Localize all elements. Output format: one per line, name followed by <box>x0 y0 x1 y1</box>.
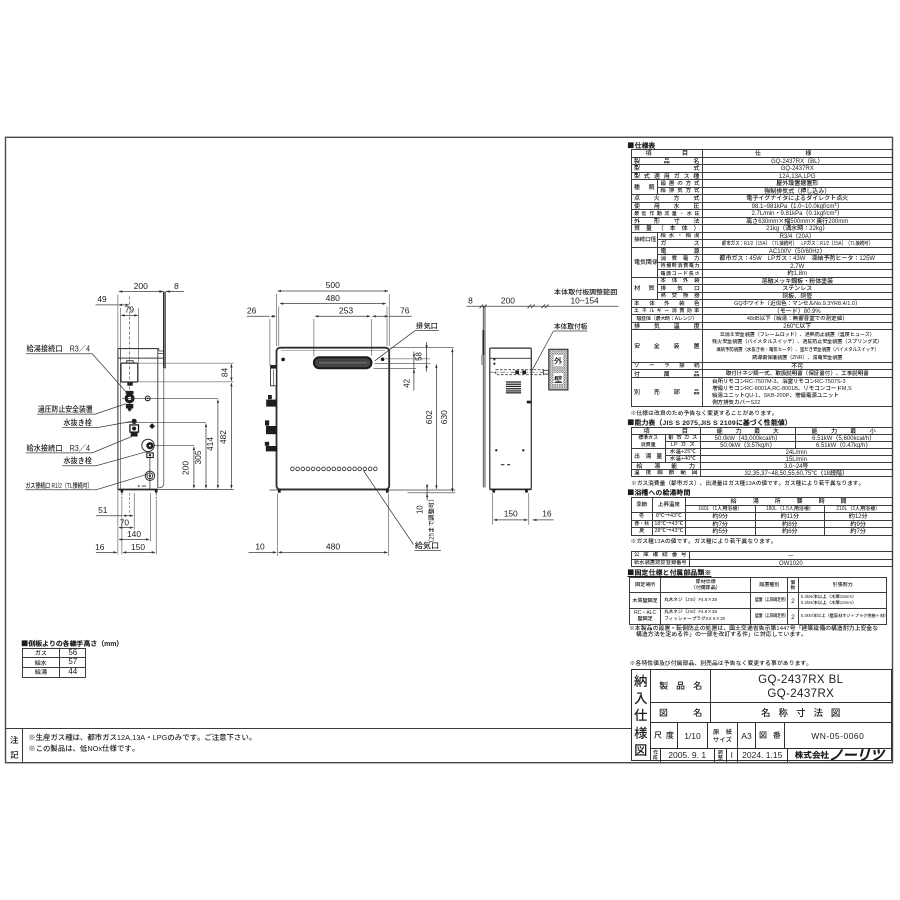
svg-text:本体取付板: 本体取付板 <box>554 322 588 332</box>
svg-text:200: 200 <box>134 280 149 292</box>
svg-text:482: 482 <box>217 430 229 444</box>
svg-text:602: 602 <box>423 410 435 424</box>
svg-text:84: 84 <box>219 368 231 378</box>
svg-text:253: 253 <box>339 305 354 317</box>
svg-text:ガス接続口 R1/2（TL接続可）: ガス接続口 R1/2（TL接続可） <box>25 481 92 491</box>
svg-text:200: 200 <box>179 461 191 475</box>
svg-text:過圧防止安全装置: 過圧防止安全装置 <box>38 404 93 415</box>
svg-text:42: 42 <box>401 379 412 388</box>
svg-text:58: 58 <box>414 352 425 361</box>
svg-text:79: 79 <box>125 304 135 316</box>
svg-text:70: 70 <box>120 516 130 528</box>
svg-text:16: 16 <box>542 508 552 520</box>
svg-text:49: 49 <box>97 293 107 305</box>
svg-text:排気口: 排気口 <box>416 321 438 332</box>
svg-text:150: 150 <box>131 541 145 553</box>
svg-text:51: 51 <box>98 504 108 516</box>
svg-text:76: 76 <box>400 305 410 317</box>
svg-text:16: 16 <box>95 541 105 553</box>
svg-text:10: 10 <box>255 540 265 552</box>
svg-text:305: 305 <box>192 450 204 464</box>
svg-text:外: 外 <box>553 355 562 367</box>
svg-text:8: 8 <box>468 294 473 306</box>
svg-text:10: 10 <box>414 505 425 514</box>
svg-text:200: 200 <box>501 294 515 306</box>
svg-text:26: 26 <box>247 305 257 317</box>
svg-text:630: 630 <box>438 410 450 424</box>
svg-text:給湯接続口 R3／4: 給湯接続口 R3／4 <box>26 344 91 355</box>
svg-text:150: 150 <box>504 508 518 520</box>
svg-text:壁: 壁 <box>554 373 562 385</box>
svg-text:（25まで調整可）: （25まで調整可） <box>426 496 435 546</box>
svg-text:給水接続口 R3／4: 給水接続口 R3／4 <box>26 443 91 454</box>
svg-text:8: 8 <box>174 280 179 292</box>
svg-text:水抜き栓: 水抜き栓 <box>63 418 92 429</box>
svg-text:本体取付板調整範囲: 本体取付板調整範囲 <box>554 288 617 298</box>
svg-text:480: 480 <box>326 540 341 552</box>
svg-text:500: 500 <box>326 279 341 291</box>
svg-text:140: 140 <box>127 528 141 540</box>
svg-text:414: 414 <box>204 437 216 451</box>
svg-text:480: 480 <box>326 292 341 304</box>
svg-text:給気口: 給気口 <box>414 540 439 551</box>
svg-text:水抜き栓: 水抜き栓 <box>63 456 92 467</box>
